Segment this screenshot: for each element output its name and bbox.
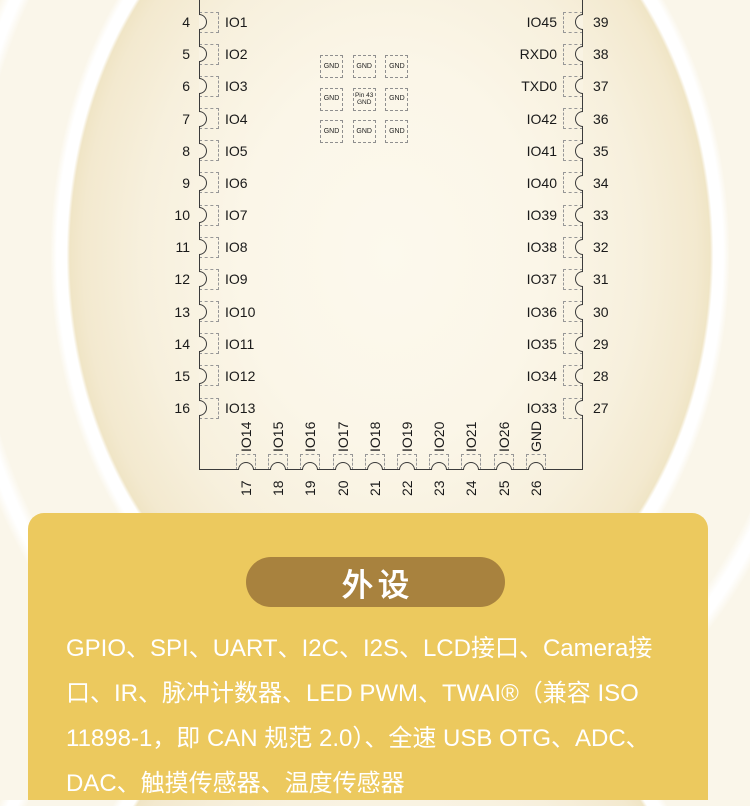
gnd-pad: GND (320, 55, 343, 78)
pin-number: 26 (527, 468, 545, 496)
pin-label: IO42 (455, 110, 557, 128)
pin-label: IO2 (225, 45, 248, 63)
pin-number: 18 (269, 468, 287, 496)
pin-number: 15 (138, 367, 190, 385)
pin-number: 35 (593, 142, 609, 160)
pin-number: 12 (138, 270, 190, 288)
pin-number: 5 (138, 45, 190, 63)
pin-number: 38 (593, 45, 609, 63)
pin-label: GND (527, 406, 545, 452)
pin-number: 11 (138, 238, 190, 256)
pin-number: 13 (138, 303, 190, 321)
pin-number: 39 (593, 13, 609, 31)
pin-label: IO36 (455, 303, 557, 321)
pin-label: IO45 (455, 13, 557, 31)
pin-number: 24 (462, 468, 480, 496)
peripherals-title-pill: 外设 (246, 557, 505, 607)
pin-number: 14 (138, 335, 190, 353)
pin-label: IO7 (225, 206, 248, 224)
pin-number: 36 (593, 110, 609, 128)
pin-label: IO39 (455, 206, 557, 224)
pin-number: 29 (593, 335, 609, 353)
pin-label: IO15 (269, 406, 287, 452)
pin-number: 32 (593, 238, 609, 256)
pin-label: IO11 (225, 335, 254, 353)
pin-label: RXD0 (455, 45, 557, 63)
pin-number: 10 (138, 206, 190, 224)
pin-number: 31 (593, 270, 609, 288)
pin-label: IO10 (225, 303, 255, 321)
pin-label: IO3 (225, 77, 248, 95)
pin-label: IO41 (455, 142, 557, 160)
gnd-pad: GND (320, 88, 343, 111)
pin-number: 16 (138, 399, 190, 417)
pin-notch (575, 143, 583, 159)
pin-number: 25 (495, 468, 513, 496)
pin-number: 4 (138, 13, 190, 31)
pin-number: 9 (138, 174, 190, 192)
pin-number: 6 (138, 77, 190, 95)
pin-number: 17 (237, 468, 255, 496)
peripherals-description: GPIO、SPI、UART、I2C、I2S、LCD接口、Camera接口、IR、… (66, 626, 672, 806)
pin-label: TXD0 (455, 77, 557, 95)
pin-label: IO12 (225, 367, 255, 385)
pin-number: 19 (301, 468, 319, 496)
pin-label: IO34 (455, 367, 557, 385)
pin-number: 23 (430, 468, 448, 496)
gnd-pad: GND (353, 55, 376, 78)
pin-number: 28 (593, 367, 609, 385)
pin-label: IO20 (430, 406, 448, 452)
pin-notch (575, 368, 583, 384)
pin-label: IO37 (455, 270, 557, 288)
pin-label: IO14 (237, 406, 255, 452)
pin-notch (575, 111, 583, 127)
pin-label: IO16 (301, 406, 319, 452)
gnd-pad: Pin 43 GND (353, 88, 376, 111)
pin-number: 37 (593, 77, 609, 95)
pin-number: 30 (593, 303, 609, 321)
gnd-pad: GND (385, 120, 408, 143)
pin-label: IO35 (455, 335, 557, 353)
pin-number: 27 (593, 399, 609, 417)
gnd-pad: GND (385, 55, 408, 78)
pin-label: IO17 (334, 406, 352, 452)
pin-label: IO6 (225, 174, 248, 192)
pin-number: 33 (593, 206, 609, 224)
pin-label: IO5 (225, 142, 248, 160)
pin-label: IO40 (455, 174, 557, 192)
pin-notch (575, 336, 583, 352)
pin-number: 21 (366, 468, 384, 496)
gnd-pad: GND (320, 120, 343, 143)
pin-label: IO9 (225, 270, 248, 288)
pin-number: 20 (334, 468, 352, 496)
pin-label: IO38 (455, 238, 557, 256)
peripherals-card: 外设 GPIO、SPI、UART、I2C、I2S、LCD接口、Camera接口、… (28, 513, 708, 800)
pinout-diagram: 外设 GPIO、SPI、UART、I2C、I2S、LCD接口、Camera接口、… (0, 0, 750, 800)
pin-label: IO26 (495, 406, 513, 452)
pin-label: IO18 (366, 406, 384, 452)
pin-label: IO19 (398, 406, 416, 452)
pin-label: IO8 (225, 238, 248, 256)
peripherals-title: 外设 (337, 560, 414, 605)
gnd-pad: GND (353, 120, 376, 143)
pin-label: IO4 (225, 110, 248, 128)
pin-notch (575, 175, 583, 191)
pin-number: 34 (593, 174, 609, 192)
gnd-pad: GND (385, 88, 408, 111)
pin-number: 8 (138, 142, 190, 160)
pin-number: 7 (138, 110, 190, 128)
pin-label: IO1 (225, 13, 248, 31)
pin-label: IO21 (462, 406, 480, 452)
pin-notch (575, 304, 583, 320)
pin-number: 22 (398, 468, 416, 496)
